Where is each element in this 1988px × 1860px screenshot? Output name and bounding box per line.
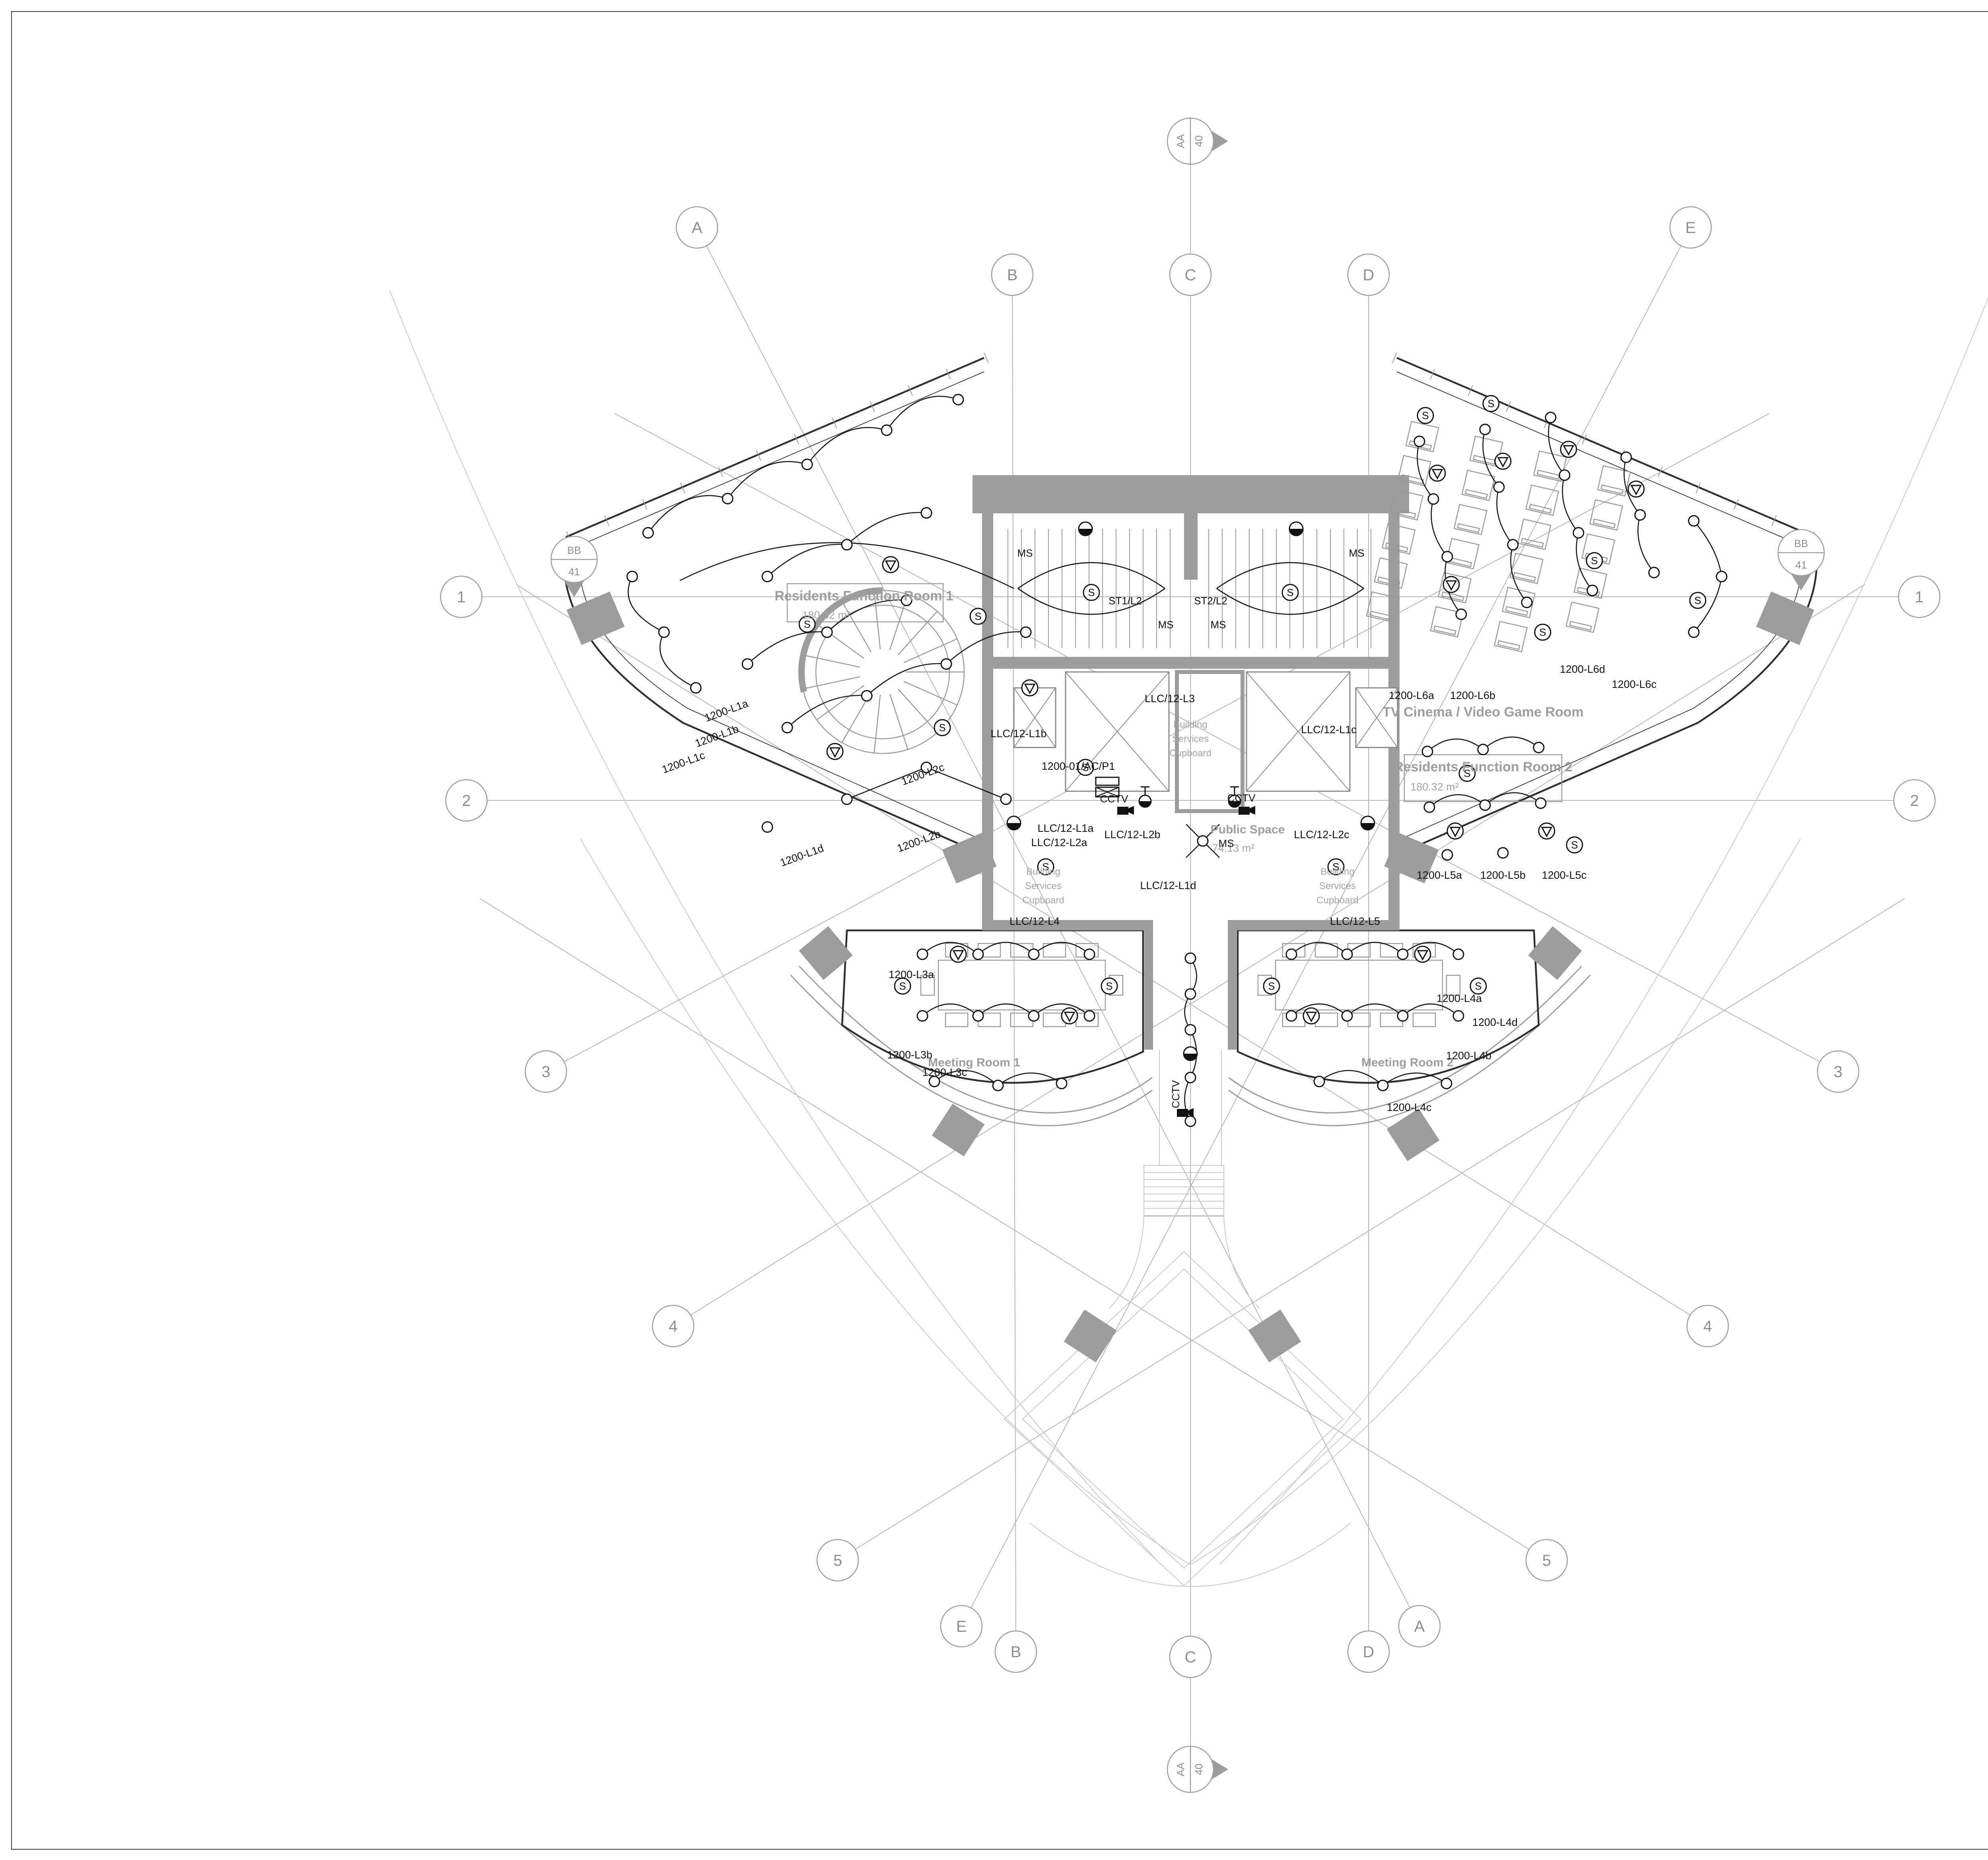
grid-bubble-bottom-C: C [1170, 1636, 1211, 1677]
svg-text:S: S [899, 980, 906, 992]
plan-label: Cupboard [1022, 895, 1064, 906]
drawing-sheet: SSSSSSSSSSSSSSSSSSS ABCDEEBCDA1234512345… [0, 0, 1988, 1860]
plan-label: 1200-L6b [1450, 689, 1495, 701]
grid-bubble-top-C: C [1170, 254, 1211, 295]
plan-label: MS [1017, 547, 1033, 559]
plan-label: 1200-L3b [887, 1049, 932, 1061]
svg-text:2: 2 [462, 792, 471, 810]
svg-text:C: C [1185, 266, 1196, 284]
grid-bubble-right-1: 1 [1899, 576, 1940, 617]
plan-label: 180.32 m² [802, 609, 850, 621]
plan-label: LLC/12-L2a [1031, 837, 1087, 848]
plan-label: 1200-L3c [922, 1066, 967, 1078]
svg-text:S: S [1539, 626, 1546, 638]
grid-bubble-left-2: 2 [446, 780, 487, 821]
plan-label: Building [1173, 719, 1207, 730]
plan-label: LLC/12-L3 [1145, 693, 1195, 705]
grid-bubble-right-5: 5 [1526, 1540, 1567, 1581]
svg-text:AA: AA [1175, 1762, 1186, 1776]
plan-label: Services [1319, 881, 1356, 891]
plan-label: 1200-L4b [1446, 1050, 1491, 1062]
svg-text:S: S [975, 610, 981, 622]
plan-label: MS [1158, 619, 1174, 631]
grid-bubble-left-4: 4 [652, 1305, 694, 1347]
plan-label: 1200-L5c [1542, 869, 1587, 881]
svg-text:S: S [1287, 586, 1293, 598]
plan-label: MS [1211, 619, 1226, 631]
plan-label: MS [1349, 547, 1365, 559]
grid-bubble-top-D: D [1348, 254, 1389, 295]
svg-text:C: C [1185, 1648, 1196, 1666]
plan-label: LLC/12-L1b [990, 728, 1046, 740]
section-marker-BB: BB41 [1778, 530, 1824, 590]
plan-label: Services [1025, 881, 1062, 891]
floor-plan: SSSSSSSSSSSSSSSSSSS ABCDEEBCDA1234512345… [12, 12, 1988, 1848]
section-marker-AA: AA40 [1167, 1746, 1228, 1792]
plan-label: 1200-L6c [1612, 678, 1657, 690]
plan-label: LLC/12-L2c [1294, 829, 1349, 841]
plan-label: LLC/12-L1d [1140, 880, 1196, 891]
plan-label: 1200-L4a [1437, 992, 1482, 1004]
plan-label: ST1/L2 [1109, 595, 1142, 607]
svg-text:S: S [1106, 980, 1112, 992]
svg-text:E: E [1685, 219, 1696, 237]
svg-text:S: S [1268, 980, 1275, 992]
grid-bubble-bottom-E: E [941, 1606, 982, 1647]
plan-label: 1200-L4d [1472, 1016, 1518, 1028]
grid-bubble-bottom-A: A [1399, 1606, 1440, 1647]
plan-label: CCTV [1100, 793, 1128, 805]
plan-label: 1200-L6d [1560, 663, 1605, 675]
svg-text:S: S [1475, 980, 1481, 992]
plan-label: Cupboard [1316, 895, 1358, 906]
plan-label: LLC/12-L5 [1330, 915, 1380, 927]
grid-bubble-left-1: 1 [441, 576, 482, 617]
terrace-outline [1004, 1165, 1361, 1586]
grid-bubble-right-2: 2 [1894, 780, 1935, 821]
svg-text:BB: BB [567, 544, 581, 556]
svg-text:41: 41 [569, 566, 580, 578]
plan-label: 1200-L1c [660, 749, 707, 776]
svg-text:S: S [939, 722, 945, 734]
section-marker-AA: AA40 [1167, 118, 1228, 164]
svg-text:S: S [1422, 410, 1429, 421]
plan-label: 180.32 m² [1410, 781, 1459, 793]
svg-text:D: D [1363, 266, 1375, 284]
grid-bubble-left-3: 3 [525, 1051, 567, 1092]
svg-text:E: E [956, 1618, 967, 1635]
plan-label: 1200-L5b [1480, 869, 1526, 881]
plan-label: 1200-L5a [1417, 869, 1462, 881]
svg-text:5: 5 [1542, 1552, 1551, 1569]
plan-label: Services [1172, 734, 1209, 744]
svg-text:A: A [692, 219, 703, 237]
grid-bubble-top-A: A [676, 207, 718, 248]
plan-label: ST2/L2 [1194, 595, 1227, 607]
plan-label: CCTV [1170, 1080, 1182, 1108]
svg-text:2: 2 [1910, 792, 1919, 810]
plan-label: WR [1368, 662, 1380, 670]
plan-label: 1200-L1a [703, 697, 750, 724]
plan-label: WR [1002, 662, 1014, 670]
grid-bubble-right-4: 4 [1687, 1305, 1728, 1347]
svg-text:40: 40 [1193, 136, 1205, 147]
plan-label: MS [1219, 837, 1234, 849]
svg-text:41: 41 [1796, 559, 1807, 571]
svg-text:3: 3 [1834, 1063, 1842, 1081]
svg-text:4: 4 [669, 1318, 678, 1335]
svg-text:BB: BB [1794, 538, 1808, 549]
svg-text:AA: AA [1175, 134, 1186, 148]
svg-text:B: B [1007, 266, 1018, 284]
plan-label: CCTV [1227, 792, 1256, 804]
plan-label: 1200-L1d [779, 842, 825, 869]
svg-text:B: B [1011, 1643, 1021, 1661]
svg-text:S: S [1694, 594, 1701, 606]
plan-label: Residents Function Room 1 [775, 588, 953, 604]
section-marker-BB: BB41 [551, 536, 597, 597]
plan-label: Meeting Room 2 [1361, 1056, 1454, 1069]
grid-bubble-right-3: 3 [1817, 1051, 1859, 1092]
grid-bubble-bottom-B: B [995, 1631, 1037, 1672]
plan-label: TV Cinema / Video Game Room [1382, 705, 1584, 720]
svg-text:3: 3 [542, 1063, 550, 1081]
grid-bubble-top-B: B [992, 254, 1033, 295]
plan-label: Building [1320, 866, 1354, 877]
plan-label: 1200-L2b [895, 828, 942, 854]
plan-label: LLC/12-L1c [1301, 724, 1357, 736]
plan-label: 1200-01/AC/P1 [1042, 760, 1115, 772]
grid-bubble-left-5: 5 [817, 1540, 858, 1581]
svg-text:A: A [1414, 1618, 1425, 1635]
svg-text:4: 4 [1703, 1318, 1712, 1335]
svg-text:S: S [1571, 839, 1578, 851]
plan-label: Cupboard [1169, 748, 1211, 759]
svg-text:40: 40 [1193, 1764, 1205, 1775]
plan-label: Residents Function Room 2 [1394, 759, 1573, 775]
svg-text:5: 5 [833, 1552, 842, 1569]
svg-text:S: S [1487, 398, 1494, 410]
svg-text:S: S [1591, 555, 1598, 567]
plan-label: 1200-L3a [889, 969, 934, 980]
plan-label: 1200-L6a [1389, 689, 1435, 701]
svg-text:D: D [1363, 1643, 1375, 1661]
grid-bubble-bottom-D: D [1348, 1631, 1389, 1672]
plan-label: LLC/12-L1a [1037, 822, 1094, 834]
plan-label: 1200-L4c [1387, 1101, 1432, 1113]
svg-text:1: 1 [1915, 588, 1924, 606]
plan-label: LLC/12-L2b [1104, 829, 1160, 841]
svg-text:S: S [1088, 586, 1095, 598]
plan-label: Public Space [1211, 823, 1285, 836]
grid-bubble-top-E: E [1670, 207, 1711, 248]
svg-text:1: 1 [457, 588, 466, 606]
plan-label: Building [1026, 866, 1060, 877]
plan-label: LLC/12-L4 [1010, 915, 1060, 927]
